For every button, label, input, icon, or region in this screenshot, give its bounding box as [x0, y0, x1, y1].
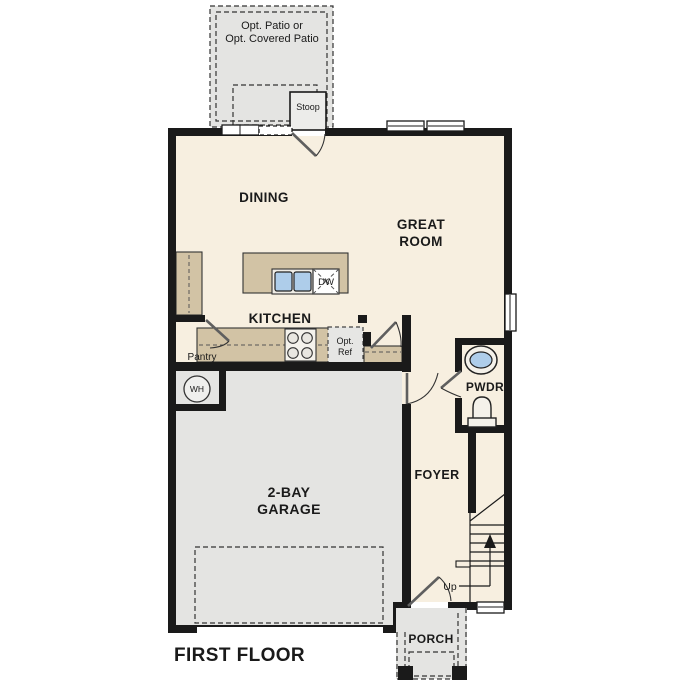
right-wall-window	[505, 294, 516, 331]
dining-label: DINING	[239, 190, 289, 205]
powder-label: PWDR	[466, 380, 504, 394]
optional-refrigerator: Opt. Ref	[328, 327, 363, 367]
right-wall	[504, 128, 512, 610]
powder-left-wall-upper	[455, 338, 462, 372]
opt-ref-label-line2: Ref	[338, 347, 353, 357]
dishwasher-label: DW	[318, 277, 334, 288]
closet-stub-wall	[358, 315, 367, 323]
garage-label-line2: GARAGE	[257, 501, 321, 517]
pantry-label: Pantry	[188, 352, 217, 363]
kitchen-label: KITCHEN	[249, 311, 312, 326]
garage-foyer-wall-upper	[402, 315, 411, 372]
garage-top-wall	[168, 362, 411, 371]
garage-foyer-wall-lower	[402, 404, 411, 625]
floor-plan-page: Opt. Patio or Opt. Covered Patio Stoop O…	[0, 0, 687, 687]
great-room-label-line1: GREAT	[397, 217, 446, 232]
stoop: Stoop	[290, 92, 326, 130]
dishwasher-icon: DW	[313, 269, 339, 294]
water-heater-label: WH	[190, 384, 204, 394]
garage-label-line1: 2-BAY	[268, 484, 311, 500]
opt-ref-label-line1: Opt.	[336, 336, 353, 346]
patio-label-line2: Opt. Covered Patio	[225, 33, 319, 45]
water-heater-bottom-wall	[176, 404, 226, 411]
sink-icon	[272, 269, 313, 294]
up-label: Up	[443, 581, 457, 593]
porch-label: PORCH	[408, 632, 453, 646]
stove-icon	[285, 329, 316, 361]
great-room-window-1	[387, 121, 424, 131]
plan-title: FIRST FLOOR	[174, 645, 305, 666]
refrigerator-nook-stub	[363, 332, 371, 346]
garage-bottom-stub-left	[168, 625, 197, 633]
porch-post-left	[398, 666, 413, 680]
stair-newel	[456, 561, 470, 567]
pantry-stub-wall	[176, 315, 205, 322]
porch: PORCH	[396, 608, 467, 680]
great-room-window-2	[427, 121, 464, 131]
great-room-label-line2: ROOM	[399, 234, 443, 249]
stoop-label: Stoop	[296, 102, 320, 112]
powder-top-wall	[455, 338, 505, 345]
stair-side-wall	[468, 433, 476, 513]
optional-door-location	[259, 126, 292, 135]
porch-post-right	[452, 666, 467, 680]
foyer-label: FOYER	[414, 468, 459, 482]
kitchen-island: DW	[243, 253, 348, 294]
left-wall	[168, 128, 176, 632]
water-heater: WH	[184, 376, 210, 402]
dining-window	[222, 125, 259, 135]
bathroom-sink-icon	[465, 346, 497, 374]
front-window	[477, 602, 504, 613]
floor-plan-svg: Opt. Patio or Opt. Covered Patio Stoop O…	[0, 0, 687, 687]
patio-label-line1: Opt. Patio or	[241, 20, 303, 32]
closet-shelf	[364, 346, 402, 363]
